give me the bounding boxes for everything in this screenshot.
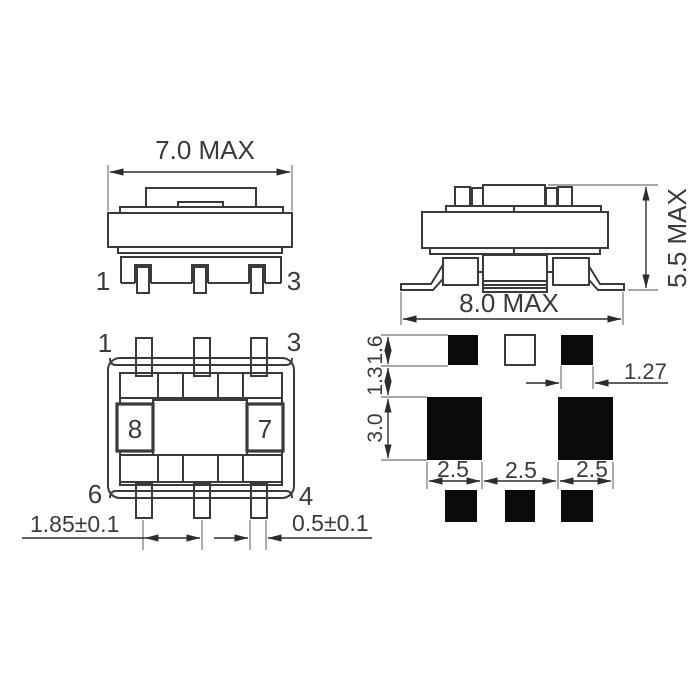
side-top-pin-right xyxy=(558,187,572,206)
pin-pitch-dim-label: 1.85±0.1 xyxy=(30,511,119,537)
pin-pitch-dimension: 1.85±0.1 xyxy=(22,511,202,550)
side-view-body xyxy=(401,185,624,292)
pad-top-left xyxy=(448,335,478,365)
side-post-left xyxy=(472,188,483,206)
pin-width-dimension: 0.5±0.1 xyxy=(214,510,372,550)
bottom-view-body: 8 7 xyxy=(117,373,283,485)
center-leg xyxy=(153,400,247,455)
front-pin-1 xyxy=(137,267,149,293)
front-width-dim-label: 7.0 MAX xyxy=(155,135,255,165)
marking-7-label: 7 xyxy=(258,414,272,444)
land-pattern: 1.6 1.3 3.0 2.5 2.5 2.5 1.27 xyxy=(364,335,668,522)
technical-drawing-sheet: 7.0 MAX 1 3 xyxy=(0,0,700,700)
side-height-dim-label: 5.5 MAX xyxy=(662,188,692,288)
side-pad-right xyxy=(553,258,589,285)
marking-8-label: 8 xyxy=(128,414,142,444)
transformer-dimension-drawing: 7.0 MAX 1 3 xyxy=(0,0,700,700)
side-center-block xyxy=(483,255,547,292)
pad-bottom-left xyxy=(445,490,477,522)
side-pad-left xyxy=(443,258,478,285)
pad-width-left-label: 2.5 xyxy=(437,456,469,482)
pin-width-dim-label: 0.5±0.1 xyxy=(292,510,369,536)
pad-top-right xyxy=(561,335,593,365)
pad-main-left xyxy=(427,397,482,460)
side-top-plate xyxy=(483,185,545,206)
row-gap-label: 1.3 xyxy=(364,366,387,395)
pad-width-right-label: 2.5 xyxy=(576,456,608,482)
front-pin3-label: 3 xyxy=(287,266,301,296)
side-post-right xyxy=(546,188,557,206)
pad-bottom-middle xyxy=(505,490,535,522)
bottom-pin3-label: 3 xyxy=(287,327,301,357)
pad-width-dimensions: 2.5 2.5 2.5 xyxy=(427,456,613,489)
front-lower-flange xyxy=(118,247,282,253)
side-width-dim-label: 8.0 MAX xyxy=(459,288,559,318)
pad-gap-label: 2.5 xyxy=(505,457,537,483)
main-pad-height-label: 3.0 xyxy=(364,413,387,442)
land-pattern-pads xyxy=(427,335,613,522)
bottom-pin-4 xyxy=(251,483,267,518)
front-view: 7.0 MAX 1 3 xyxy=(96,135,301,296)
pad-main-right xyxy=(558,397,613,460)
side-width-dimension: 8.0 MAX xyxy=(401,288,623,325)
side-core-band xyxy=(422,212,608,248)
bottom-pin4-label: 4 xyxy=(299,481,313,511)
bottom-pin-6 xyxy=(136,483,152,518)
side-top-pin-left xyxy=(455,187,470,206)
top-pad-height-label: 1.6 xyxy=(364,335,387,364)
front-view-body xyxy=(108,188,292,293)
front-pin-2 xyxy=(194,267,206,293)
small-pad-width-dimension: 1.27 xyxy=(526,359,668,389)
front-pin-3 xyxy=(251,267,263,293)
small-pad-width-label: 1.27 xyxy=(624,359,667,384)
pad-bottom-right xyxy=(561,490,593,522)
bottom-pin1-label: 1 xyxy=(98,328,112,358)
front-pin1-label: 1 xyxy=(96,266,110,296)
side-view: 8.0 MAX 5.5 MAX xyxy=(401,185,692,325)
bottom-pin6-label: 6 xyxy=(88,479,102,509)
pad-top-middle xyxy=(505,335,535,365)
bottom-view: 8 7 1 3 6 4 1.85±0.1 0.5±0.1 xyxy=(22,327,372,550)
front-core-band xyxy=(108,213,292,247)
bottom-pin-5 xyxy=(194,483,210,518)
